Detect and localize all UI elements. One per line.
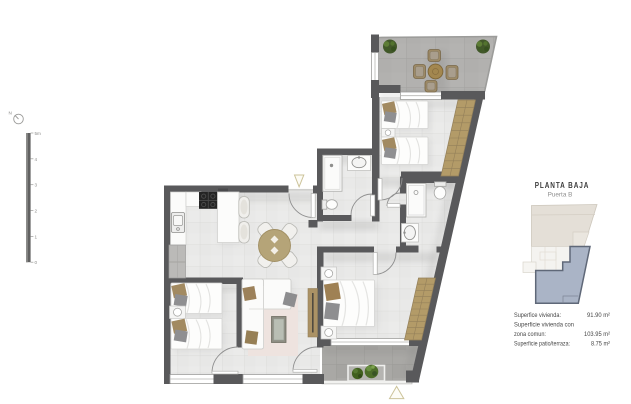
svg-text:91.90 m²: 91.90 m²: [587, 312, 611, 319]
svg-text:5m: 5m: [35, 131, 42, 136]
svg-text:zona comun:: zona comun:: [514, 331, 546, 338]
svg-text:Superfice vivienda:: Superfice vivienda:: [514, 312, 561, 319]
svg-text:4: 4: [35, 157, 38, 162]
svg-text:1: 1: [35, 234, 38, 239]
svg-text:103.95 m²: 103.95 m²: [584, 331, 611, 338]
svg-text:Superficie vivienda con: Superficie vivienda con: [514, 322, 574, 329]
svg-text:Puerta B: Puerta B: [548, 192, 573, 199]
svg-text:PLANTA BAJA: PLANTA BAJA: [535, 181, 590, 190]
svg-text:0: 0: [35, 260, 38, 265]
svg-text:N: N: [9, 111, 12, 116]
svg-text:8.75 m²: 8.75 m²: [591, 341, 611, 348]
svg-text:Superficie patio/terraza:: Superficie patio/terraza:: [514, 341, 570, 348]
svg-text:3: 3: [35, 183, 38, 188]
svg-text:2: 2: [35, 209, 38, 214]
